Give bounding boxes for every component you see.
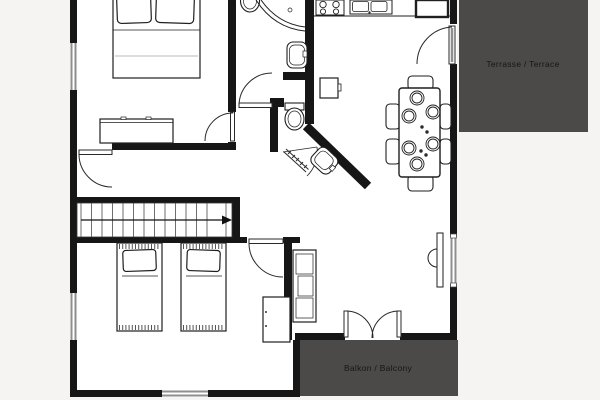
double-bed (113, 0, 200, 78)
floor-plan-drawing: Terrasse / Terrace Balkon / Balcony (0, 0, 600, 400)
kitchen (314, 0, 450, 17)
wall-stair-north (70, 197, 240, 203)
wall-bedroom-bath (228, 0, 236, 112)
wardrobe (263, 297, 290, 342)
balcony-area: Balkon / Balcony (300, 340, 458, 396)
window-left-lower (70, 293, 77, 340)
wall-balcony-side (293, 340, 300, 397)
single-bed-right (181, 243, 226, 331)
terrace-area: Terrasse / Terrace (459, 0, 588, 132)
wall-bedroom2-north-left (70, 237, 247, 243)
wall-stair-east (232, 197, 240, 243)
floor-plan-page: Terrasse / Terrace Balkon / Balcony (0, 0, 600, 400)
kitchen-sink (350, 0, 392, 14)
single-bed-left (117, 243, 162, 331)
chair-right-2 (440, 139, 451, 164)
window-bottom (162, 390, 208, 397)
wall-living-south-right (400, 333, 457, 340)
chair-right-1 (440, 104, 451, 129)
wall-corridor-north (112, 143, 236, 150)
side-table (320, 78, 341, 98)
washbasin (287, 42, 307, 68)
dining-table (399, 88, 440, 177)
stove (316, 0, 344, 15)
window-left-upper (70, 43, 77, 90)
wc-toilet (285, 103, 304, 130)
wall-right-top (450, 0, 457, 24)
dresser (100, 117, 173, 143)
wall-bath-south (283, 72, 314, 80)
balcony-label: Balkon / Balcony (344, 363, 413, 373)
wall-bottom-left (70, 390, 162, 397)
wall-bottom-right (208, 390, 300, 397)
terrace-label: Terrasse / Terrace (486, 59, 559, 69)
chair-left-1 (386, 104, 400, 129)
sideboard (293, 250, 316, 322)
wall-right-low (450, 284, 457, 340)
tall-cabinet (416, 0, 448, 17)
wall-living-south-left (295, 333, 345, 340)
window-right (450, 234, 457, 287)
chair-left-2 (386, 139, 400, 164)
